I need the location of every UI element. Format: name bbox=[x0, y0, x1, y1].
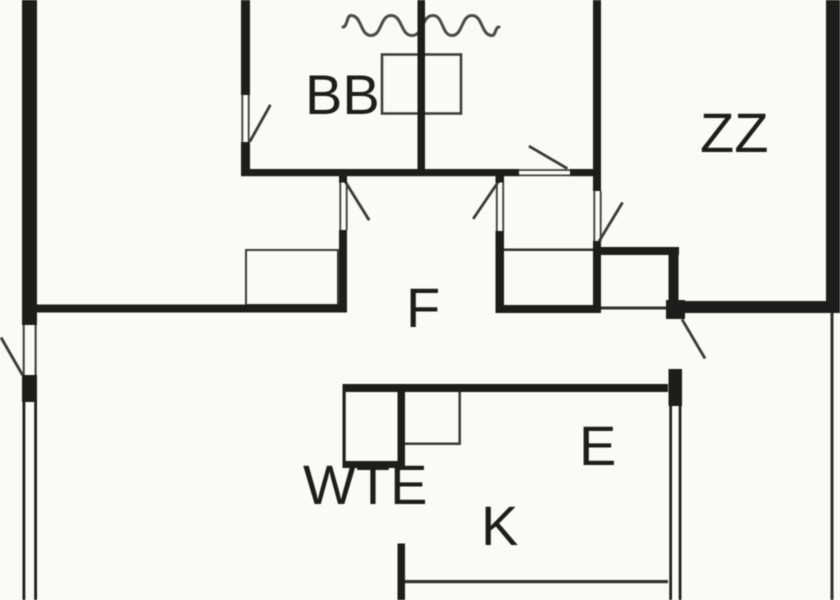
svg-text:BB: BB bbox=[305, 63, 380, 126]
svg-text:ZZ: ZZ bbox=[700, 101, 768, 164]
svg-text:WTE: WTE bbox=[303, 453, 427, 516]
svg-text:K: K bbox=[481, 494, 518, 557]
svg-text:E: E bbox=[579, 414, 616, 477]
svg-text:F: F bbox=[406, 276, 440, 339]
